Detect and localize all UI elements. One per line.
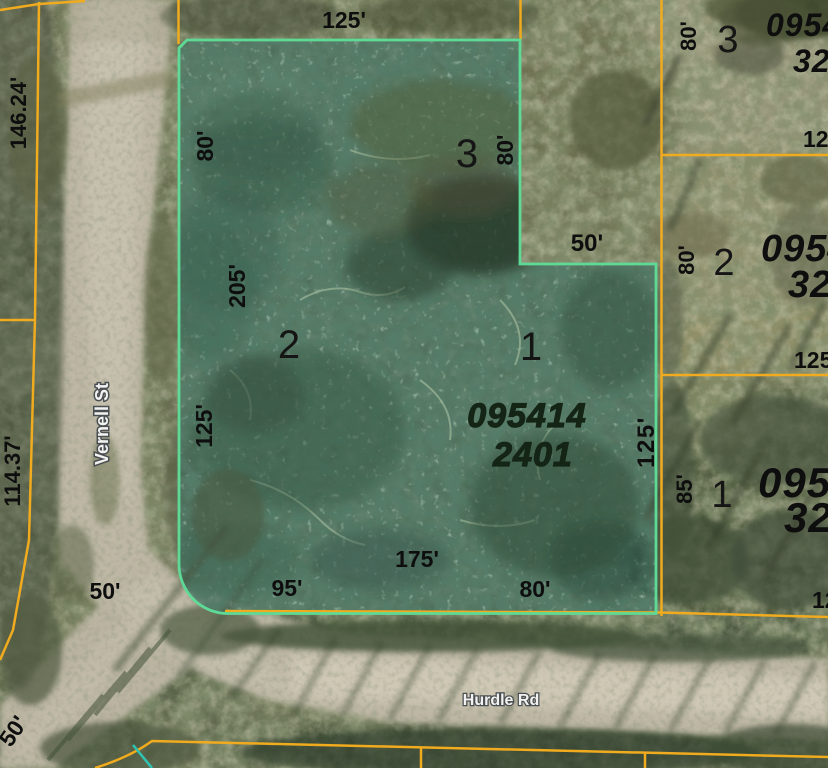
svg-text:95': 95' bbox=[271, 575, 302, 601]
svg-text:3: 3 bbox=[456, 132, 478, 176]
svg-text:125': 125' bbox=[794, 347, 828, 373]
svg-text:3: 3 bbox=[717, 19, 738, 61]
svg-text:125': 125' bbox=[812, 587, 828, 613]
svg-text:095432: 095432 bbox=[766, 7, 828, 43]
svg-text:125': 125' bbox=[633, 416, 660, 468]
svg-text:1: 1 bbox=[711, 474, 732, 516]
svg-text:3218: 3218 bbox=[793, 43, 828, 79]
svg-text:1: 1 bbox=[520, 325, 542, 369]
svg-text:3219: 3219 bbox=[788, 264, 828, 306]
svg-text:125': 125' bbox=[803, 126, 828, 152]
svg-text:80': 80' bbox=[676, 21, 701, 51]
svg-text:175': 175' bbox=[395, 546, 439, 572]
svg-text:125': 125' bbox=[191, 404, 217, 448]
svg-text:80': 80' bbox=[519, 576, 550, 602]
svg-text:Hurdle Rd: Hurdle Rd bbox=[463, 692, 539, 709]
svg-text:2: 2 bbox=[713, 242, 734, 284]
svg-text:125': 125' bbox=[322, 7, 366, 33]
svg-text:2401: 2401 bbox=[492, 436, 573, 474]
svg-text:205': 205' bbox=[224, 264, 250, 308]
svg-text:095414: 095414 bbox=[467, 397, 586, 435]
svg-text:80': 80' bbox=[192, 130, 218, 161]
svg-text:50': 50' bbox=[89, 578, 120, 604]
svg-text:80': 80' bbox=[674, 245, 699, 275]
svg-text:146.24': 146.24' bbox=[6, 77, 31, 150]
svg-text:114.37': 114.37' bbox=[0, 435, 25, 506]
svg-text:Vernell St: Vernell St bbox=[92, 383, 112, 465]
svg-text:3205: 3205 bbox=[784, 494, 828, 541]
svg-text:85': 85' bbox=[672, 474, 697, 504]
svg-text:80': 80' bbox=[492, 134, 518, 165]
svg-text:50': 50' bbox=[571, 230, 603, 257]
svg-text:2: 2 bbox=[278, 323, 300, 367]
